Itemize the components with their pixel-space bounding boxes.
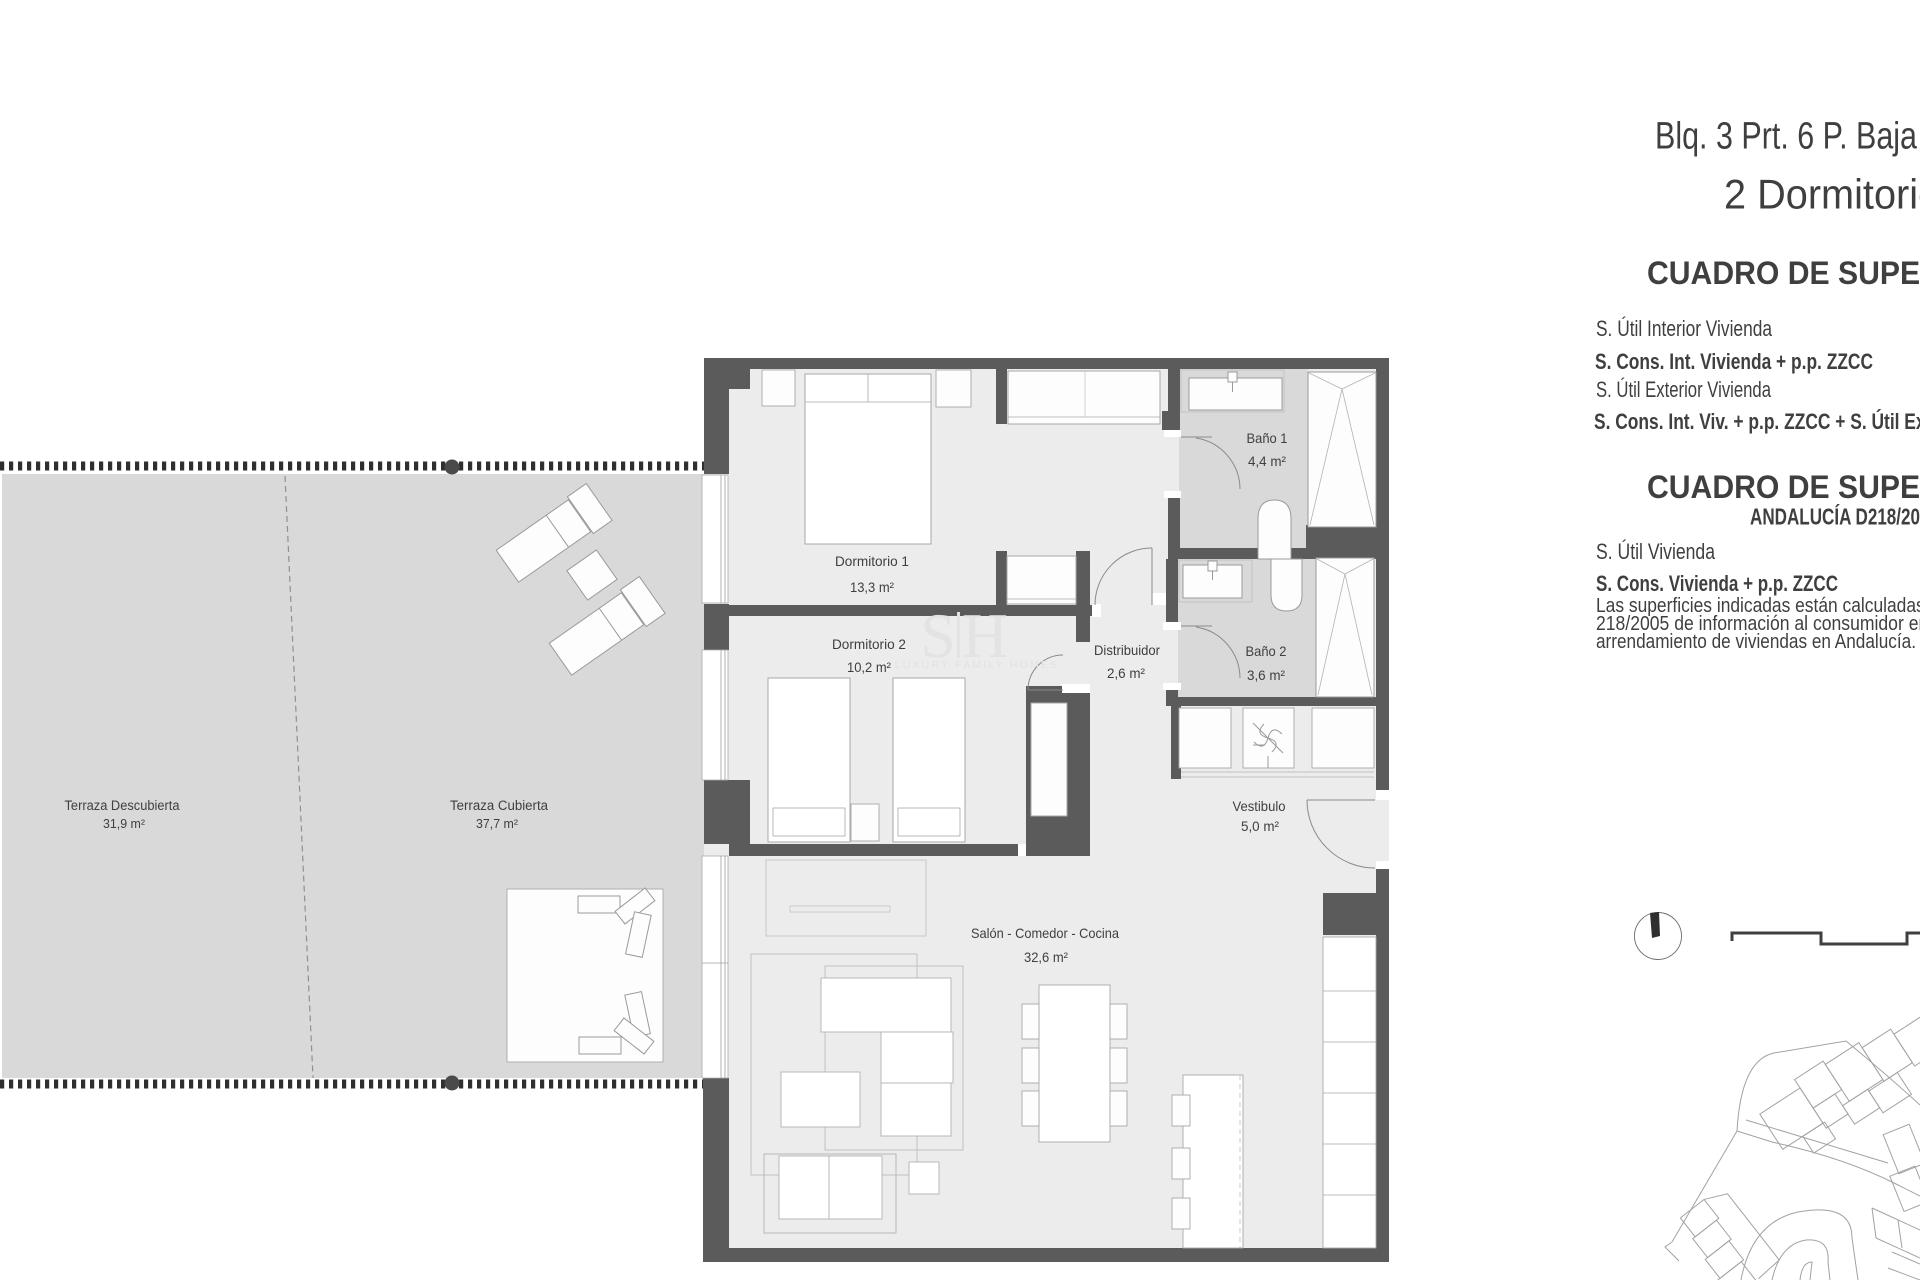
svg-text:S. Útil Vivienda: S. Útil Vivienda <box>1596 539 1716 564</box>
svg-text:Vestibulo: Vestibulo <box>1233 798 1286 814</box>
svg-text:LUXURY FAMILY HOMES: LUXURY FAMILY HOMES <box>895 659 1060 671</box>
svg-text:Baño 2: Baño 2 <box>1246 643 1287 659</box>
svg-text:CUADRO DE SUPERFICIES: CUADRO DE SUPERFICIES <box>1647 469 1920 505</box>
svg-text:5,0 m²: 5,0 m² <box>1241 819 1279 834</box>
svg-text:S. Cons. Int. Vivienda + p.p.: S. Cons. Int. Vivienda + p.p. ZZCC <box>1595 349 1873 374</box>
svg-text:10,2 m²: 10,2 m² <box>847 660 891 675</box>
svg-text:4,4 m²: 4,4 m² <box>1248 454 1286 469</box>
svg-text:Dormitorio 2: Dormitorio 2 <box>832 636 906 652</box>
svg-text:S. Útil Interior Vivienda: S. Útil Interior Vivienda <box>1596 316 1773 341</box>
svg-text:Terraza Cubierta: Terraza Cubierta <box>450 798 548 813</box>
svg-text:Blq. 3 Prt. 6 P. Baja: Blq. 3 Prt. 6 P. Baja <box>1655 116 1918 158</box>
svg-text:ANDALUCÍA D218/2005: ANDALUCÍA D218/2005 <box>1750 503 1920 530</box>
svg-text:37,7 m²: 37,7 m² <box>476 816 519 831</box>
svg-text:Distribuidor: Distribuidor <box>1094 642 1160 658</box>
svg-text:3,6 m²: 3,6 m² <box>1247 668 1285 683</box>
svg-text:32,6 m²: 32,6 m² <box>1024 950 1068 965</box>
svg-text:13,3 m²: 13,3 m² <box>850 580 894 595</box>
svg-text:Salón - Comedor - Cocina: Salón - Comedor - Cocina <box>971 925 1119 941</box>
svg-text:CUADRO DE SUPERFICIES: CUADRO DE SUPERFICIES <box>1647 255 1920 291</box>
svg-text:Dormitorio 1: Dormitorio 1 <box>835 553 909 569</box>
svg-text:2,6 m²: 2,6 m² <box>1107 666 1145 681</box>
svg-text:31,9 m²: 31,9 m² <box>103 816 146 831</box>
svg-text:Terraza Descubierta: Terraza Descubierta <box>65 798 180 813</box>
svg-text:arrendamiento de viviendas en: arrendamiento de viviendas en Andalucía. <box>1596 631 1916 653</box>
svg-text:Baño 1: Baño 1 <box>1247 430 1288 446</box>
svg-text:2 Dormitorios: 2 Dormitorios <box>1724 171 1920 218</box>
svg-text:S. Cons. Int. Viv. + p.p. ZZCC: S. Cons. Int. Viv. + p.p. ZZCC + S. Útil… <box>1594 409 1920 434</box>
svg-text:S. Cons. Vivienda + p.p. ZZCC: S. Cons. Vivienda + p.p. ZZCC <box>1596 571 1838 596</box>
svg-text:S. Útil Exterior Vivienda: S. Útil Exterior Vivienda <box>1596 377 1772 402</box>
